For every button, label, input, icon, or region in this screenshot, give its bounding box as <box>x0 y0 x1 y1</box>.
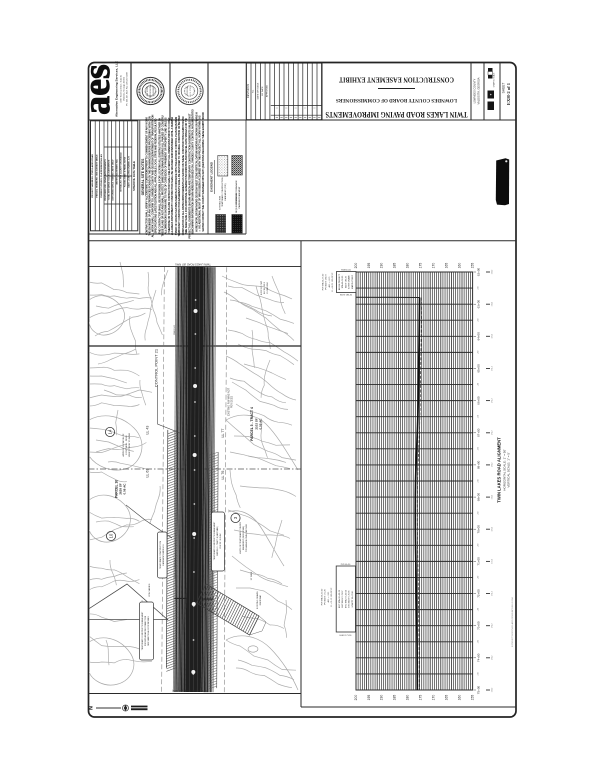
svg-text:64+00: 64+00 <box>477 332 481 341</box>
svg-text:174.2: 174.2 <box>492 656 494 661</box>
svg-text:EXISTING GRAVEL: EXISTING GRAVEL <box>256 590 259 609</box>
svg-text:BVC STA: 66+00.00: BVC STA: 66+00.00 <box>338 589 341 608</box>
svg-text:73+00: 73+00 <box>477 621 481 630</box>
svg-text:65+00: 65+00 <box>477 364 481 373</box>
svg-text:LL 63: LL 63 <box>146 469 150 478</box>
svg-text:EASEMENT PARCEL 10: EASEMENT PARCEL 10 <box>162 545 165 566</box>
svg-text:195: 195 <box>367 263 371 269</box>
svg-text:2102 SF / 0.05 AC: 2102 SF / 0.05 AC <box>219 533 222 549</box>
svg-text:N: N <box>89 706 95 710</box>
svg-text:174.2: 174.2 <box>492 527 494 532</box>
svg-text:TEMPORARY CONSTRUCTION: TEMPORARY CONSTRUCTION <box>159 541 162 569</box>
svg-text:174.2: 174.2 <box>492 366 494 371</box>
svg-text:170: 170 <box>432 263 436 269</box>
svg-text:174.2: 174.2 <box>492 623 494 628</box>
svg-text:FLOOD ZONE: X PANEL 0275E: FLOOD ZONE: X PANEL 0275E <box>124 156 127 187</box>
svg-text:PAVEMENT: PAVEMENT <box>238 197 241 208</box>
svg-text:195: 195 <box>367 695 371 701</box>
svg-text:14: 14 <box>107 429 112 434</box>
svg-text:APPROVED: APPROVED <box>266 85 269 98</box>
svg-text:PROJECT ADDRESS: TWIN LAKES RO: PROJECT ADDRESS: TWIN LAKES ROAD <box>91 154 94 198</box>
svg-text:SHEET: SHEET <box>502 83 506 94</box>
svg-text:PARCEL 3 - TRACT 4: PARCEL 3 - TRACT 4 <box>250 407 254 441</box>
svg-text:TOTAL SITE AREA: 0.11 AC EASEM: TOTAL SITE AREA: 0.11 AC EASEMENTS <box>108 159 111 200</box>
svg-text:PVI 66+50: PVI 66+50 <box>341 564 351 566</box>
svg-text:175: 175 <box>419 263 423 269</box>
svg-text:LOW PT 66+72.41: LOW PT 66+72.41 <box>352 590 354 607</box>
svg-text:174.2: 174.2 <box>492 334 494 339</box>
svg-text:K = 31.15 100.00 VC: K = 31.15 100.00 VC <box>331 587 333 606</box>
svg-text:200: 200 <box>354 695 358 701</box>
svg-text:EXIST WELL - FIELD: EXIST WELL - FIELD <box>126 435 128 455</box>
svg-text:Alternative Engineering Servic: Alternative Engineering Services, LLC <box>115 60 119 117</box>
svg-text:TWIN LAKES ROAD (80' R/W): TWIN LAKES ROAD (80' R/W) <box>175 262 211 266</box>
svg-text:PROFESSIONAL: PROFESSIONAL <box>149 84 152 98</box>
svg-text:SPECIFICATIONS LATEST EDITION: SPECIFICATIONS LATEST EDITION AND ALL AP… <box>155 118 158 233</box>
svg-text:175: 175 <box>419 695 423 701</box>
svg-text:REQUIRED R/W FOR: REQUIRED R/W FOR <box>236 193 238 213</box>
svg-text:DATE OF ISSUE: DATE OF ISSUE <box>256 82 259 99</box>
svg-text:ELEV 171.26: ELEV 171.26 <box>340 635 353 637</box>
svg-text:74+00: 74+00 <box>477 653 481 662</box>
svg-text:APPROX. LOCATION OF: APPROX. LOCATION OF <box>122 433 125 457</box>
svg-text:EASEMENT LEGEND: EASEMENT LEGEND <box>210 161 214 192</box>
svg-text:EVC STA: 67+00.00: EVC STA: 67+00.00 <box>344 589 347 608</box>
svg-text:EASEMENT: EASEMENT <box>238 186 241 198</box>
svg-text:160: 160 <box>457 695 461 701</box>
svg-text:EXISTING R/W: EXISTING R/W <box>220 196 222 210</box>
svg-text:174.2: 174.2 <box>492 302 494 307</box>
svg-text:EXH-2 of 1: EXH-2 of 1 <box>506 82 511 105</box>
svg-text:Ph: 229-247-8416 Fax: 229-247: Ph: 229-247-8416 Fax: 229-247-9248 <box>127 71 129 105</box>
svg-text:VERTICAL SCALE: 1" = 5': VERTICAL SCALE: 1" = 5' <box>507 452 511 488</box>
svg-text:LL 76: LL 76 <box>221 471 225 480</box>
svg-text:CURRENT ZONING: R-A RESIDENTIA: CURRENT ZONING: R-A RESIDENTIAL AG <box>100 154 103 198</box>
svg-text:174.2: 174.2 <box>492 688 494 693</box>
svg-text:LOWNDES COUNTY BOARD OF COMMIS: LOWNDES COUNTY BOARD OF COMMISSIONERS <box>336 97 457 103</box>
svg-text:155: 155 <box>470 695 474 701</box>
svg-text:10: 10 <box>108 533 113 538</box>
svg-text:PVI ELEV 182.97: PVI ELEV 182.97 <box>326 273 328 289</box>
svg-text:185: 185 <box>393 263 397 269</box>
svg-text:MATCH POINT: MATCH POINT <box>351 274 354 288</box>
svg-text:160: 160 <box>457 263 461 269</box>
svg-text:PARCEL 3 - TRACT 4 (HATCHED): PARCEL 3 - TRACT 4 (HATCHED) <box>216 526 219 556</box>
svg-text:SEE SHEET EXH-1 FOR DETAILS: SEE SHEET EXH-1 FOR DETAILS <box>147 616 150 646</box>
svg-text:VALDOSTA, GEORGIA: VALDOSTA, GEORGIA <box>477 77 481 104</box>
svg-text:165: 165 <box>444 263 448 269</box>
svg-text:TEMPORARY CONSTRUCTION EASEMEN: TEMPORARY CONSTRUCTION EASEMENT <box>141 611 144 650</box>
svg-text:EASEMENT (TCE): EASEMENT (TCE) <box>224 183 227 200</box>
svg-text:SETBACKS: PER COUNTY ORDINANCE: SETBACKS: PER COUNTY ORDINANCE <box>120 152 123 192</box>
svg-text:BENCHMARK INFORMATION SHOWN HE: BENCHMARK INFORMATION SHOWN HEREON IS BA… <box>192 109 195 234</box>
svg-text:PER DEED: PER DEED <box>231 396 234 408</box>
svg-text:PVI STA 66+50.00: PVI STA 66+50.00 <box>321 588 324 605</box>
svg-text:GEORGIA: GEORGIA <box>186 86 189 95</box>
svg-text:Valdosta, Georgia 31601: Valdosta, Georgia 31601 <box>123 76 126 101</box>
svg-text:174.2: 174.2 <box>492 431 494 436</box>
svg-text:LOWNDES COUNTY: LOWNDES COUNTY <box>473 78 477 103</box>
svg-text:174.2: 174.2 <box>492 591 494 596</box>
svg-text:165: 165 <box>444 695 448 701</box>
svg-text:STA 60+50: STA 60+50 <box>341 269 352 272</box>
svg-text:S:\PROJECTS\2020\TWIN LAKES RD: S:\PROJECTS\2020\TWIN LAKES RD\EXHIBITS\… <box>511 596 514 647</box>
svg-text:GRAPHIC SCALE: GRAPHIC SCALE <box>493 72 496 87</box>
svg-text:L.S. 2791: L.S. 2791 <box>190 87 192 95</box>
svg-text:CONTROL POINT 21: CONTROL POINT 21 <box>154 348 159 387</box>
svg-text:EXIST 24" CMP: EXIST 24" CMP <box>261 280 263 295</box>
svg-text:LIMITS OF TEMPORARY CONSTR: LIMITS OF TEMPORARY CONSTR <box>239 522 242 554</box>
svg-text:ALL AREAS DISTURBED BY CONSTRU: ALL AREAS DISTURBED BY CONSTRUCTION SHAL… <box>171 117 174 235</box>
svg-text:BEGIN PROJECT: BEGIN PROJECT <box>339 273 341 290</box>
svg-text:GENERAL SITE NOTES: GENERAL SITE NOTES <box>141 158 145 195</box>
svg-text:SEE SHEET EXH-1 FOR ADDITIONAL: SEE SHEET EXH-1 FOR ADDITIONAL EASEMENT … <box>185 118 188 234</box>
svg-text:LL 43: LL 43 <box>146 426 150 435</box>
svg-text:ELEV 183.46: ELEV 183.46 <box>345 275 347 288</box>
svg-text:ELEV 183.46: ELEV 183.46 <box>340 295 353 297</box>
svg-text:75+00: 75+00 <box>477 685 481 694</box>
svg-text:TWIN LAKES ROAD (80' R/W): TWIN LAKES ROAD (80' R/W) <box>172 689 208 693</box>
svg-text:EVC ELEV: 170.95: EVC ELEV: 170.95 <box>349 590 351 608</box>
svg-text:72+00: 72+00 <box>477 589 481 598</box>
svg-text:69+00: 69+00 <box>477 493 481 502</box>
svg-text:No. 23029: No. 23029 <box>147 86 149 96</box>
svg-text:DATE: JUNE 2005 DRAWN: JLH: DATE: JUNE 2005 DRAWN: JLH <box>128 156 131 188</box>
svg-text:TEMPORARY CONSTRUCTION EASEMEN: TEMPORARY CONSTRUCTION EASEMENTS SHALL B… <box>178 115 181 236</box>
svg-text:FLOWS NW: FLOWS NW <box>267 282 269 293</box>
svg-text:STA 60+50.00: STA 60+50.00 <box>341 275 344 288</box>
svg-text:No.: No. <box>253 89 255 93</box>
svg-text:FOR DRIVEWAY RECONNECTION: FOR DRIVEWAY RECONNECTION <box>144 615 147 646</box>
svg-text:71+00: 71+00 <box>477 557 481 566</box>
svg-text:180: 180 <box>406 263 410 269</box>
svg-text:TWIN LAKES ROAD PAVING IMPROVE: TWIN LAKES ROAD PAVING IMPROVEMENTS <box>325 110 467 119</box>
svg-text:EDGE OF PAVEMENT: EDGE OF PAVEMENT <box>174 557 177 578</box>
svg-text:INV EL 168.2: INV EL 168.2 <box>264 281 266 294</box>
svg-text:WATER: N/A SEWER: N/A: WATER: N/A SEWER: N/A <box>116 159 119 185</box>
svg-text:PARCEL NUMBERS: SEE EXHIBIT TA: PARCEL NUMBERS: SEE EXHIBIT TABLE <box>96 154 99 198</box>
svg-text:LL 77: LL 77 <box>221 429 225 438</box>
svg-text:174.2: 174.2 <box>492 270 494 275</box>
svg-text:1907 Norman Drive, Suite A: 1907 Norman Drive, Suite A <box>120 75 123 103</box>
svg-text:185: 185 <box>393 695 397 701</box>
svg-text:174.2: 174.2 <box>492 495 494 500</box>
svg-text:BY DATE: BY DATE <box>261 86 264 96</box>
svg-text:174.2: 174.2 <box>492 559 494 564</box>
svg-text:BVC ELEV: 172.07: BVC ELEV: 172.07 <box>342 590 344 608</box>
svg-text:STA 62+00: STA 62+00 <box>173 324 176 335</box>
svg-text:190: 190 <box>380 695 384 701</box>
svg-text:62+00: 62+00 <box>477 267 481 276</box>
svg-text:REVISIONS: REVISIONS <box>246 84 250 98</box>
svg-text:CONSTRUCTION EASEMENT EXHIBIT: CONSTRUCTION EASEMENT EXHIBIT <box>339 76 454 83</box>
svg-text:DRIVEWAY: DRIVEWAY <box>259 594 262 605</box>
svg-text:TEMPORARY CONSTRUCTION EASEMEN: TEMPORARY CONSTRUCTION EASEMENT <box>213 521 216 560</box>
svg-text:ALL DIMENSIONS SHOWN ARE TO FA: ALL DIMENSIONS SHOWN ARE TO FACE OF CURB… <box>164 117 167 234</box>
svg-text:170: 170 <box>432 695 436 701</box>
svg-text:aes: aes <box>76 64 118 115</box>
svg-text:180: 180 <box>406 695 410 701</box>
svg-text:VERIFY PRIOR TO WORK: VERIFY PRIOR TO WORK <box>129 432 131 457</box>
svg-text:190: 190 <box>380 263 384 269</box>
svg-text:TWIN LAKES ROAD ALIGNMENT: TWIN LAKES ROAD ALIGNMENT <box>497 437 502 503</box>
svg-text:70+00: 70+00 <box>477 525 481 534</box>
svg-text:NO ADDITIONAL RIGHT OF WAY IS: NO ADDITIONAL RIGHT OF WAY IS BEING ACQU… <box>198 115 201 228</box>
svg-text:0.06 AC: 0.06 AC <box>123 483 127 495</box>
svg-text:155: 155 <box>470 263 474 269</box>
svg-text:200: 200 <box>354 263 358 269</box>
svg-text:63+00: 63+00 <box>477 300 481 309</box>
svg-text:TCE AREA SHOWN HATCHED: TCE AREA SHOWN HATCHED <box>245 523 248 552</box>
svg-text:A.D. = -3.21: A.D. = -3.21 <box>327 591 330 603</box>
svg-text:PVI STA 60+75.00: PVI STA 60+75.00 <box>322 273 325 290</box>
svg-text:68+00: 68+00 <box>477 460 481 469</box>
svg-text:SHOWN CONTACT THE COUNTY ENGIN: SHOWN CONTACT THE COUNTY ENGINEER WITH A… <box>202 112 205 232</box>
svg-text:DISTURBED AREA: PAVING LIMITS: DISTURBED AREA: PAVING LIMITS ONLY <box>112 159 115 201</box>
svg-text:PROPOSED USE: ROAD IMPROVEMENT: PROPOSED USE: ROAD IMPROVEMENTS <box>104 159 107 201</box>
svg-text:0.05 AC: 0.05 AC <box>259 418 263 430</box>
svg-text:PVI ELEV 171.26: PVI ELEV 171.26 <box>325 588 327 604</box>
svg-text:R/W VARIES: R/W VARIES <box>148 583 151 596</box>
svg-text:K = 46.51 100.00 VC: K = 46.51 100.00 VC <box>332 272 334 291</box>
svg-text:A.D. = -2.15: A.D. = -2.15 <box>328 276 331 288</box>
svg-text:67+00: 67+00 <box>477 428 481 437</box>
svg-text:ENGINEER: ENGINEER <box>153 86 155 96</box>
svg-text:174.2: 174.2 <box>492 398 494 403</box>
svg-text:174.2: 174.2 <box>492 463 494 468</box>
svg-text:EXIST GRADE: EXIST GRADE <box>348 275 351 289</box>
svg-text:SITE/CIVIL DATA TABLE: SITE/CIVIL DATA TABLE <box>132 161 136 191</box>
svg-text:25' WIDE: 25' WIDE <box>251 571 253 580</box>
svg-text:EASEMENT (SEE DETAIL): EASEMENT (SEE DETAIL) <box>242 526 245 551</box>
svg-text:66+00: 66+00 <box>477 396 481 405</box>
